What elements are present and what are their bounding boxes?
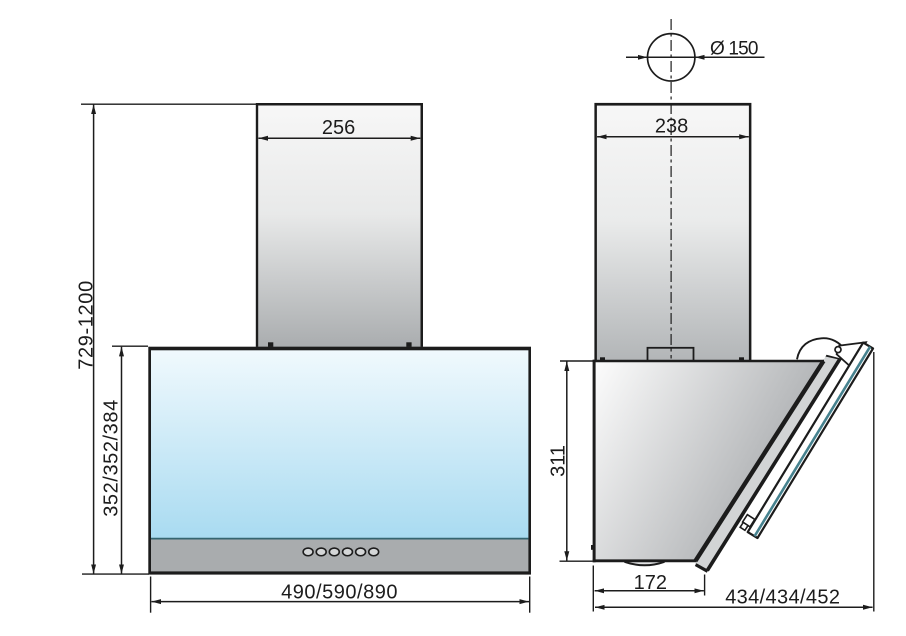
svg-text:Ø 150: Ø 150 xyxy=(710,39,759,60)
svg-text:238: 238 xyxy=(655,115,688,137)
svg-text:256: 256 xyxy=(322,117,355,139)
svg-text:434/434/452: 434/434/452 xyxy=(725,587,840,609)
svg-text:311: 311 xyxy=(547,445,569,477)
svg-text:729-1200: 729-1200 xyxy=(75,281,97,370)
svg-text:172: 172 xyxy=(634,572,667,594)
svg-text:490/590/890: 490/590/890 xyxy=(281,582,397,604)
svg-text:352/352/384: 352/352/384 xyxy=(100,400,122,517)
